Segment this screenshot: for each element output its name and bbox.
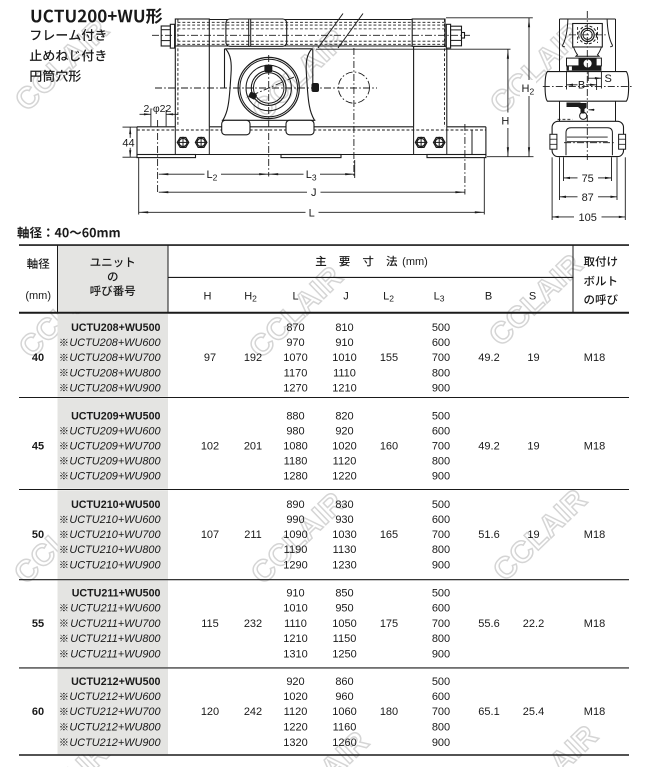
svg-text:600: 600 — [432, 337, 450, 349]
svg-text:810: 810 — [335, 322, 353, 334]
svg-text:102: 102 — [201, 441, 219, 453]
svg-text:51.6: 51.6 — [478, 529, 499, 541]
svg-text:1210: 1210 — [283, 633, 307, 645]
svg-text:1070: 1070 — [283, 352, 307, 364]
svg-text:UCTU212+WU800: UCTU212+WU800 — [69, 722, 160, 734]
svg-text:UCTU211+WU800: UCTU211+WU800 — [70, 633, 160, 645]
svg-text:1150: 1150 — [333, 633, 357, 645]
svg-text:1110: 1110 — [284, 618, 307, 630]
svg-text:930: 930 — [335, 514, 353, 526]
svg-text:1120: 1120 — [284, 706, 308, 718]
svg-text:B: B — [485, 290, 492, 302]
svg-text:H2: H2 — [244, 290, 257, 303]
svg-text:UCTU208+WU800: UCTU208+WU800 — [69, 367, 160, 379]
svg-text:UCTU208+WU600: UCTU208+WU600 — [69, 337, 160, 349]
svg-text:97: 97 — [204, 352, 216, 364]
svg-text:232: 232 — [244, 618, 262, 630]
svg-text:B: B — [578, 80, 585, 92]
svg-text:1220: 1220 — [332, 471, 356, 483]
svg-text:49.2: 49.2 — [478, 441, 499, 453]
svg-text:1010: 1010 — [332, 352, 356, 364]
svg-text:242: 242 — [244, 706, 262, 718]
svg-text:700: 700 — [432, 618, 450, 630]
svg-text:UCTU208+WU900: UCTU208+WU900 — [69, 382, 160, 394]
svg-text:1220: 1220 — [283, 722, 307, 734]
svg-text:910: 910 — [335, 337, 353, 349]
svg-text:J: J — [343, 290, 349, 302]
svg-text:1020: 1020 — [283, 691, 307, 703]
svg-text:900: 900 — [432, 559, 450, 571]
svg-text:192: 192 — [244, 352, 262, 364]
svg-text:UCTU210+WU800: UCTU210+WU800 — [69, 544, 160, 556]
svg-text:910: 910 — [286, 587, 304, 599]
svg-text:1270: 1270 — [283, 382, 307, 394]
svg-text:M18: M18 — [584, 441, 605, 453]
svg-text:1320: 1320 — [283, 737, 307, 749]
svg-text:UCTU211+WU600: UCTU211+WU600 — [70, 603, 160, 615]
svg-text:600: 600 — [432, 603, 450, 615]
svg-text:600: 600 — [432, 426, 450, 438]
svg-text:500: 500 — [432, 587, 450, 599]
svg-text:(mm): (mm) — [25, 290, 51, 302]
svg-text:UCTU208+WU700: UCTU208+WU700 — [69, 352, 160, 364]
svg-text:25.4: 25.4 — [523, 706, 544, 718]
svg-text:1230: 1230 — [332, 559, 356, 571]
svg-text:60: 60 — [32, 706, 44, 718]
svg-text:700: 700 — [432, 529, 450, 541]
svg-text:1030: 1030 — [332, 529, 356, 541]
svg-text:UCTU209+WU500: UCTU209+WU500 — [71, 411, 160, 423]
svg-text:UCTU209+WU900: UCTU209+WU900 — [69, 471, 160, 483]
svg-text:800: 800 — [432, 367, 450, 379]
svg-text:1310: 1310 — [283, 649, 307, 661]
svg-text:45: 45 — [32, 441, 44, 453]
svg-text:1110: 1110 — [333, 367, 356, 379]
svg-text:880: 880 — [286, 411, 304, 423]
svg-text:105: 105 — [579, 212, 597, 224]
svg-text:75: 75 — [582, 173, 594, 185]
svg-text:211: 211 — [244, 529, 262, 541]
svg-text:44: 44 — [122, 138, 134, 150]
svg-text:UCTU209+WU700: UCTU209+WU700 — [69, 441, 160, 453]
svg-text:120: 120 — [201, 706, 219, 718]
svg-text:87: 87 — [582, 192, 594, 204]
svg-text:UCTU210+WU600: UCTU210+WU600 — [69, 514, 160, 526]
svg-text:960: 960 — [335, 691, 353, 703]
svg-text:800: 800 — [432, 456, 450, 468]
svg-text:165: 165 — [380, 529, 398, 541]
svg-text:UCTU212+WU900: UCTU212+WU900 — [69, 737, 160, 749]
svg-text:55.6: 55.6 — [478, 618, 499, 630]
svg-text:500: 500 — [432, 499, 450, 511]
svg-text:600: 600 — [432, 514, 450, 526]
svg-text:UCTU212+WU500: UCTU212+WU500 — [71, 676, 160, 688]
svg-text:UCTU211+WU500: UCTU211+WU500 — [72, 587, 161, 599]
svg-text:UCTU211+WU700: UCTU211+WU700 — [70, 618, 160, 630]
svg-text:890: 890 — [286, 499, 304, 511]
svg-text:1190: 1190 — [284, 544, 308, 556]
svg-text:1250: 1250 — [332, 649, 356, 661]
svg-text:500: 500 — [432, 322, 450, 334]
svg-text:800: 800 — [432, 722, 450, 734]
svg-text:1280: 1280 — [283, 471, 307, 483]
svg-text:700: 700 — [432, 706, 450, 718]
svg-text:L: L — [292, 290, 298, 302]
svg-text:(mm): (mm) — [402, 256, 428, 268]
svg-text:L3: L3 — [434, 290, 445, 303]
svg-text:1060: 1060 — [332, 706, 356, 718]
svg-text:1020: 1020 — [332, 441, 356, 453]
svg-text:S: S — [529, 290, 536, 302]
svg-text:201: 201 — [244, 441, 262, 453]
svg-text:UCTU211+WU900: UCTU211+WU900 — [70, 649, 160, 661]
svg-text:107: 107 — [201, 529, 219, 541]
svg-text:820: 820 — [335, 411, 353, 423]
svg-text:180: 180 — [380, 706, 398, 718]
svg-text:49.2: 49.2 — [478, 352, 499, 364]
svg-text:1120: 1120 — [333, 456, 357, 468]
svg-text:850: 850 — [335, 587, 353, 599]
svg-text:115: 115 — [201, 618, 219, 630]
svg-text:2-φ22: 2-φ22 — [143, 103, 171, 115]
svg-text:950: 950 — [335, 603, 353, 615]
svg-text:UCTU209+WU600: UCTU209+WU600 — [69, 426, 160, 438]
svg-text:UCTU210+WU500: UCTU210+WU500 — [71, 499, 160, 511]
svg-text:65.1: 65.1 — [478, 706, 499, 718]
svg-text:UCTU212+WU700: UCTU212+WU700 — [69, 706, 160, 718]
svg-text:870: 870 — [286, 322, 304, 334]
svg-text:S: S — [605, 73, 612, 85]
svg-text:900: 900 — [432, 382, 450, 394]
svg-text:UCTU209+WU800: UCTU209+WU800 — [69, 456, 160, 468]
svg-text:M18: M18 — [584, 618, 605, 630]
svg-text:700: 700 — [432, 441, 450, 453]
svg-text:900: 900 — [432, 471, 450, 483]
svg-text:L3: L3 — [306, 169, 317, 182]
svg-text:UCTU210+WU700: UCTU210+WU700 — [69, 529, 160, 541]
svg-text:600: 600 — [432, 691, 450, 703]
svg-text:1160: 1160 — [333, 722, 357, 734]
svg-text:19: 19 — [527, 529, 539, 541]
svg-text:50: 50 — [32, 529, 44, 541]
svg-text:920: 920 — [286, 676, 304, 688]
svg-text:M18: M18 — [584, 529, 605, 541]
svg-text:M18: M18 — [584, 352, 605, 364]
svg-text:800: 800 — [432, 633, 450, 645]
svg-text:1010: 1010 — [283, 603, 307, 615]
svg-text:55: 55 — [32, 618, 44, 630]
svg-text:155: 155 — [380, 352, 398, 364]
svg-text:1050: 1050 — [332, 618, 356, 630]
svg-text:900: 900 — [432, 649, 450, 661]
svg-text:L: L — [309, 207, 315, 219]
svg-text:J: J — [311, 187, 317, 199]
svg-text:H: H — [501, 116, 509, 128]
svg-text:830: 830 — [335, 499, 353, 511]
svg-text:990: 990 — [286, 514, 304, 526]
svg-text:L2: L2 — [207, 169, 218, 182]
svg-text:H: H — [204, 290, 212, 302]
svg-text:1080: 1080 — [283, 441, 307, 453]
svg-text:40: 40 — [32, 352, 44, 364]
svg-text:UCTU208+WU500: UCTU208+WU500 — [71, 322, 160, 334]
svg-text:L2: L2 — [383, 290, 394, 303]
svg-text:1130: 1130 — [333, 544, 357, 556]
svg-text:1260: 1260 — [332, 737, 356, 749]
svg-text:M18: M18 — [584, 706, 605, 718]
svg-text:500: 500 — [432, 676, 450, 688]
svg-text:920: 920 — [335, 426, 353, 438]
svg-text:1170: 1170 — [284, 367, 308, 379]
svg-text:UCTU212+WU600: UCTU212+WU600 — [69, 691, 160, 703]
svg-text:1210: 1210 — [332, 382, 356, 394]
svg-text:700: 700 — [432, 352, 450, 364]
svg-text:160: 160 — [380, 441, 398, 453]
svg-text:19: 19 — [527, 441, 539, 453]
svg-text:860: 860 — [335, 676, 353, 688]
svg-text:1090: 1090 — [283, 529, 307, 541]
svg-text:980: 980 — [286, 426, 304, 438]
svg-text:22.2: 22.2 — [523, 618, 544, 630]
svg-text:UCTU210+WU900: UCTU210+WU900 — [69, 559, 160, 571]
svg-text:175: 175 — [380, 618, 398, 630]
svg-text:19: 19 — [527, 352, 539, 364]
svg-text:900: 900 — [432, 737, 450, 749]
svg-text:1180: 1180 — [284, 456, 308, 468]
svg-text:800: 800 — [432, 544, 450, 556]
svg-text:1290: 1290 — [283, 559, 307, 571]
svg-text:970: 970 — [286, 337, 304, 349]
svg-text:500: 500 — [432, 411, 450, 423]
